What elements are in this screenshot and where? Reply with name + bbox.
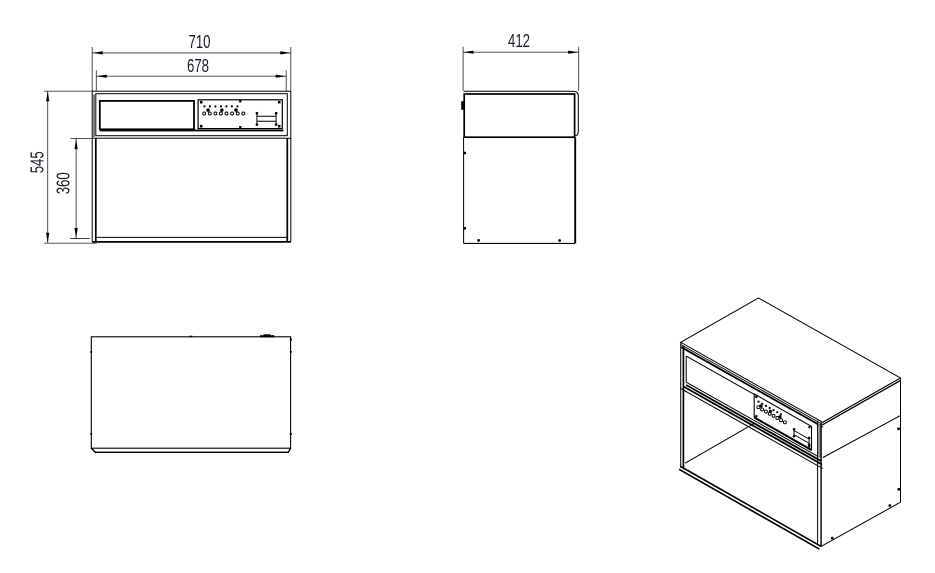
svg-text:545: 545 bbox=[27, 151, 47, 173]
svg-text:360: 360 bbox=[53, 172, 73, 194]
svg-text:710: 710 bbox=[189, 32, 211, 52]
svg-text:678: 678 bbox=[187, 56, 209, 76]
svg-text:412: 412 bbox=[508, 31, 530, 51]
